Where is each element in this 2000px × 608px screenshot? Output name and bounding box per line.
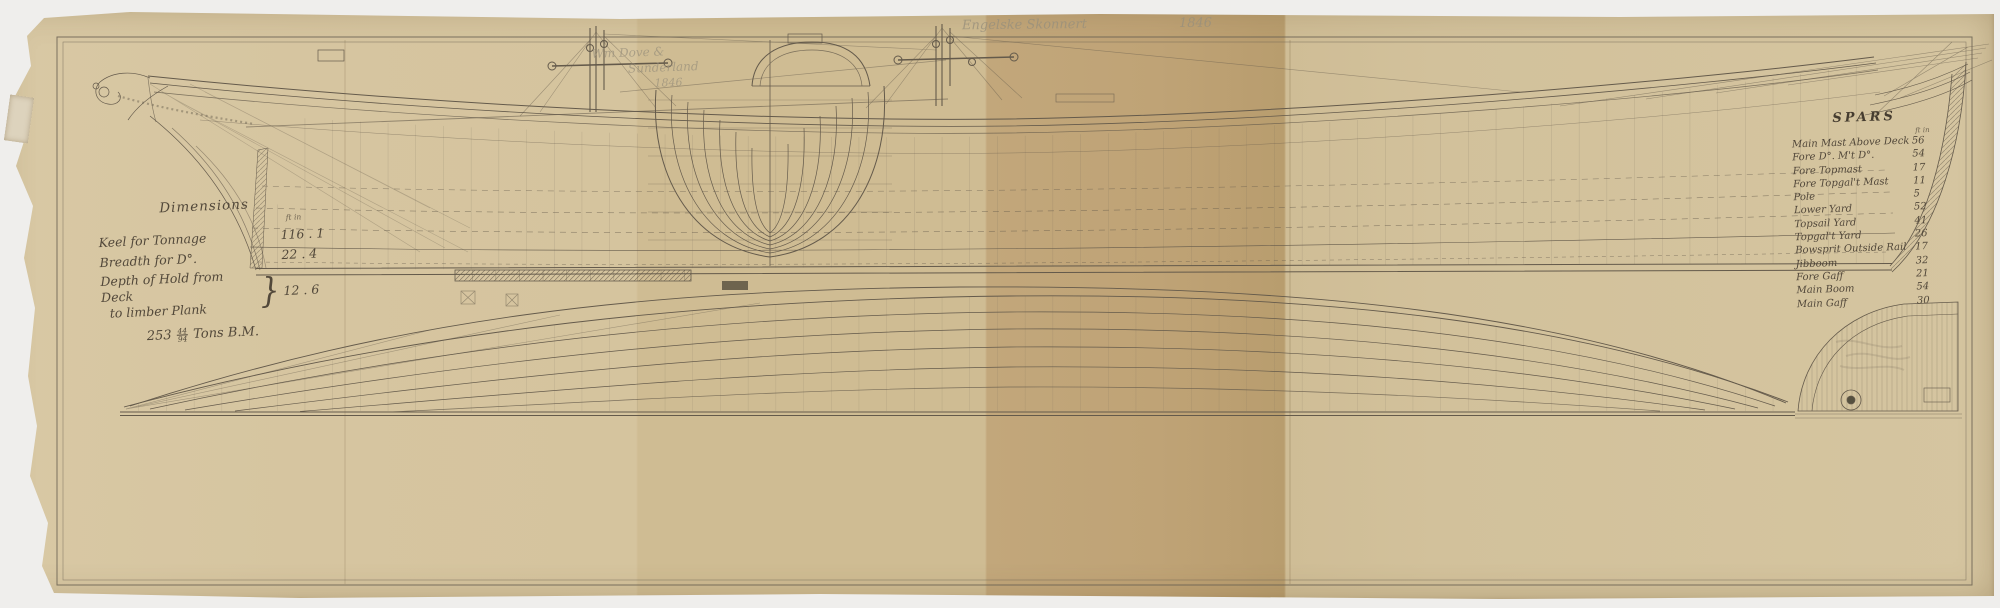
spars-title: SPARS <box>1791 108 1937 128</box>
spar-value: 11 <box>1913 174 1939 188</box>
dimension-value: 12 . 6 <box>283 280 333 297</box>
tonnage-whole: 253 <box>147 328 172 344</box>
spar-value: 17 <box>1913 160 1939 174</box>
pencil-title-year: 1846 <box>1179 16 1212 31</box>
stern-detail-inset <box>1795 302 1962 418</box>
dimension-label: Keel for Tonnage <box>98 227 280 250</box>
builder-note-line3: 1846 <box>654 74 699 92</box>
spar-name: Jibboom <box>1795 257 1837 272</box>
main-boom-line <box>246 99 948 127</box>
spar-value: 21 <box>1916 267 1942 281</box>
dimension-value: 116 . 1 <box>280 225 331 242</box>
spars-table: SPARS ft in Main Mast Above Deck56 Fore … <box>1791 108 1943 311</box>
spar-value: 5 <box>1913 187 1939 201</box>
tonnage-fraction: 44 94 <box>176 327 188 342</box>
brace-glyph: } <box>259 270 280 311</box>
spar-name: Fore D°. M't D°. <box>1792 149 1874 165</box>
spar-value: 32 <box>1915 253 1941 267</box>
scale-bar <box>455 270 748 290</box>
sheer-plan <box>148 50 1895 275</box>
spar-value: 52 <box>1914 200 1940 214</box>
pencil-title-note: Engelske Skonnert 1846 <box>962 16 1212 34</box>
spar-value: 30 <box>1917 293 1943 307</box>
spar-value: 56 <box>1912 134 1938 148</box>
spar-value: 26 <box>1915 227 1941 241</box>
hatch-x-marks <box>461 291 518 306</box>
spar-name: Pole <box>1793 191 1815 205</box>
spar-name: Main Gaff <box>1797 296 1847 311</box>
builder-note-line2: Sunderland <box>628 58 699 76</box>
pencil-title-text: Engelske Skonnert <box>962 17 1087 33</box>
builder-note: Wm Dove & Sunderland 1846 <box>591 42 699 94</box>
spar-value: 17 <box>1915 240 1941 254</box>
tonnage-denominator: 94 <box>177 335 189 342</box>
dimension-label: Depth of Hold from Deck to limber Plank <box>100 267 259 322</box>
scan-background: Engelske Skonnert 1846 Wm Dove & Sunderl… <box>0 0 2000 608</box>
dimensions-table: Dimensions ft in Keel for Tonnage 116 . … <box>97 193 335 346</box>
spar-value: 41 <box>1914 213 1940 227</box>
dimensions-depth-row: Depth of Hold from Deck to limber Plank … <box>100 264 334 322</box>
dimension-value: 22 . 4 <box>281 245 332 262</box>
spar-value: 54 <box>1912 147 1938 161</box>
spar-value: 54 <box>1916 280 1942 294</box>
tonnage-suffix: Tons B.M. <box>193 324 259 342</box>
masts-and-rigging <box>246 24 1520 127</box>
dimensions-unit-header: ft in <box>286 211 330 222</box>
half-breadth-plan <box>120 287 1795 416</box>
